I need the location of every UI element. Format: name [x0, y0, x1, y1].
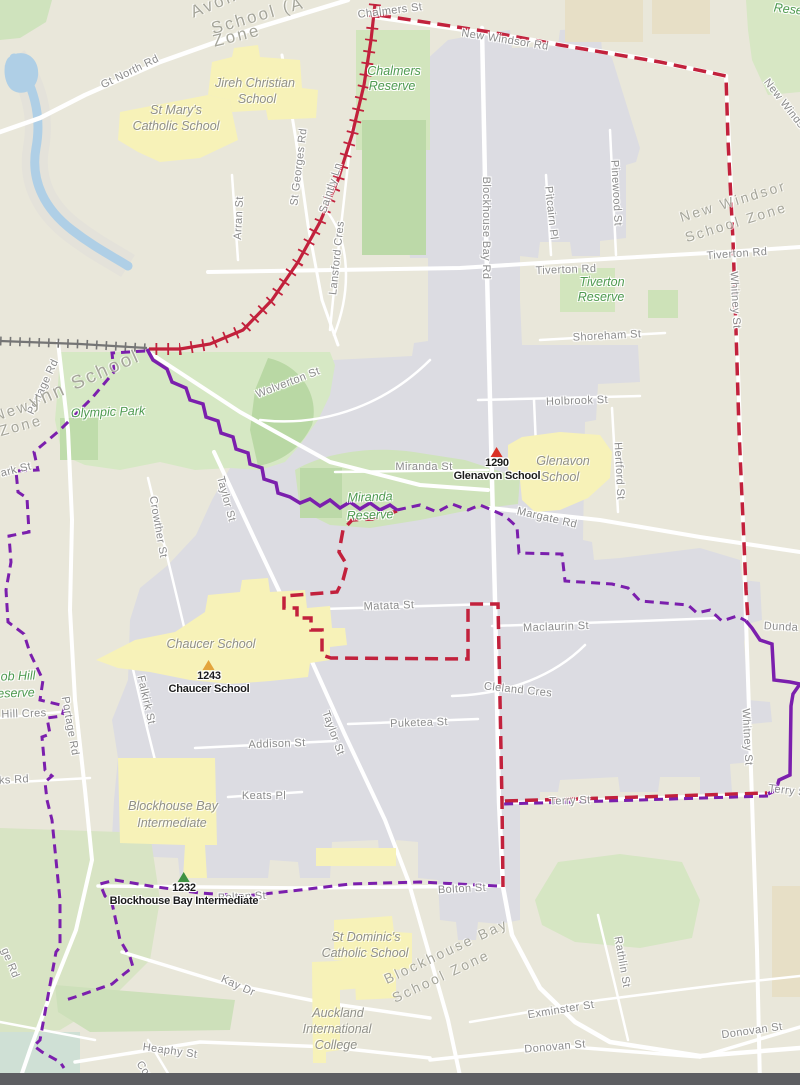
- school-site-label: School: [238, 92, 276, 106]
- street-label: Addison St: [248, 737, 306, 751]
- school-site-label: Glenavon: [536, 454, 590, 468]
- street-label: Pinewood St: [608, 160, 623, 227]
- street-label: Pitcairn Pl: [542, 186, 560, 241]
- reserve-label: Chalmers: [367, 64, 421, 78]
- street-label: Rathlin St: [612, 935, 633, 988]
- reserve-label: ob Hill: [0, 668, 35, 683]
- street-label: Holbrook St: [546, 394, 608, 408]
- street-label: Keats Pl: [242, 790, 286, 802]
- street-label: Miranda St: [395, 461, 452, 473]
- zone-label: ynn School: [26, 346, 144, 415]
- reserve-label: Tiverton: [579, 275, 624, 289]
- zone-label: School (A: [209, 0, 307, 39]
- street-label: Lansford Cres: [327, 220, 347, 295]
- street-label: Crowther St: [147, 495, 170, 559]
- zone-label: Zone: [211, 20, 263, 51]
- school-site-label: Chaucer School: [167, 637, 256, 651]
- street-label: St Georges Rd: [288, 128, 309, 207]
- school-site-label: St Dominic's: [331, 930, 400, 944]
- street-label: Whitney St: [728, 271, 743, 329]
- zone-label: Zone: [0, 412, 45, 440]
- street-label: Dunda: [763, 620, 798, 634]
- bottom-bar: [0, 1073, 800, 1085]
- street-label: Tiverton Rd: [706, 246, 768, 262]
- school-site-label: Jireh Christian: [215, 76, 295, 90]
- school-site-label: International: [303, 1022, 372, 1036]
- zone-label: Blockhouse Bay: [381, 915, 510, 987]
- reserve-label: Reserve: [369, 79, 416, 93]
- reserve-label: Reserve: [773, 1, 800, 20]
- street-label: Blockhouse Bay Rd: [480, 177, 492, 280]
- reserve-label: Olympic Park: [71, 404, 146, 421]
- zone-label: Avon: [188, 0, 240, 22]
- street-label: Bolton St: [438, 882, 487, 897]
- street-label: Heaphy St: [142, 1041, 198, 1061]
- street-label: Matata St: [363, 599, 414, 613]
- street-label: Arran St: [232, 196, 246, 240]
- street-label: ark St: [0, 460, 33, 479]
- street-label: Margate Rd: [516, 505, 579, 531]
- street-label: Portage Rd: [59, 696, 81, 757]
- street-label: Falkirk St: [135, 674, 158, 725]
- street-label: Taylor St: [214, 475, 238, 523]
- school-site-label: College: [315, 1038, 357, 1052]
- street-label: New Windsor Rd: [461, 27, 550, 53]
- street-label: Maclaurin St: [523, 620, 589, 634]
- street-label: Terry St: [549, 794, 590, 807]
- street-label: Portage Rd: [25, 357, 61, 416]
- school-site-label: Catholic School: [322, 946, 409, 960]
- street-label: Kay Dr: [219, 973, 257, 999]
- street-label: New Windsor Rd: [761, 77, 800, 154]
- reserve-label: eserve: [0, 685, 35, 700]
- zone-label: School Zone: [683, 199, 789, 245]
- street-label: Shoreham St: [572, 328, 641, 344]
- street-label: Bolton St: [218, 890, 267, 905]
- school-site-label: Intermediate: [137, 816, 206, 830]
- street-label: Wolverton St: [254, 365, 321, 400]
- reserve-label: Miranda: [347, 489, 393, 505]
- street-label: Hertford St: [612, 442, 627, 500]
- school-zone-map[interactable]: Chalmers StNew Windsor RdGt North RdNew …: [0, 0, 800, 1085]
- street-label: ks Rd: [0, 773, 29, 787]
- street-label: Whitney St: [740, 708, 755, 766]
- zone-label: New: [0, 397, 32, 425]
- school-site-label: School: [541, 470, 579, 484]
- street-label: Gt North Rd: [99, 53, 161, 91]
- school-site-label: Blockhouse Bay: [128, 799, 218, 813]
- street-label: Tiverton Rd: [535, 263, 596, 277]
- map-labels-layer: Chalmers StNew Windsor RdGt North RdNew …: [0, 0, 800, 1085]
- reserve-label: Reserve: [578, 290, 625, 304]
- school-site-label: St Mary's: [150, 103, 202, 117]
- street-label: Terry St: [768, 783, 800, 800]
- street-label: Donovan St: [524, 1038, 586, 1055]
- street-label: Saintly Ln: [317, 161, 345, 214]
- street-label: Donovan St: [721, 1021, 784, 1041]
- zone-label: School Zone: [390, 946, 493, 1005]
- reserve-label: Reserve: [346, 507, 393, 523]
- street-label: Cleland Cres: [483, 680, 552, 699]
- street-label: ge Rd: [0, 946, 21, 980]
- school-site-label: Auckland: [312, 1006, 363, 1020]
- street-label: Taylor St: [319, 709, 346, 757]
- school-site-label: Catholic School: [133, 119, 220, 133]
- zone-label: New Windsor: [678, 177, 789, 225]
- street-label: Exminster St: [527, 999, 595, 1021]
- street-label: Hill Cres: [1, 707, 47, 721]
- street-label: Chalmers St: [357, 1, 423, 21]
- street-label: Puketea St: [390, 716, 448, 730]
